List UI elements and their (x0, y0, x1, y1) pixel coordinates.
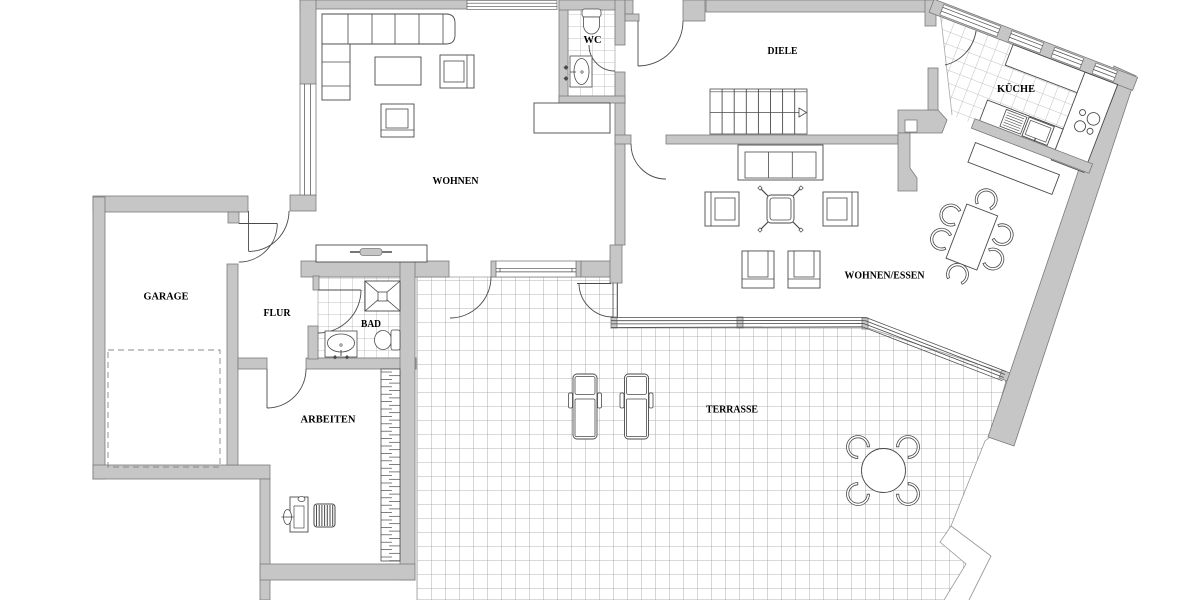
svg-text:WOHNEN: WOHNEN (433, 175, 479, 187)
svg-text:WC: WC (584, 34, 602, 46)
svg-text:DIELE: DIELE (768, 45, 798, 57)
svg-text:BAD: BAD (361, 318, 381, 330)
svg-text:WOHNEN/ESSEN: WOHNEN/ESSEN (845, 270, 925, 282)
svg-text:ARBEITEN: ARBEITEN (301, 414, 356, 426)
svg-text:FLUR: FLUR (264, 307, 292, 319)
svg-text:GARAGE: GARAGE (144, 291, 189, 303)
svg-text:TERRASSE: TERRASSE (706, 404, 758, 416)
svg-text:KÜCHE: KÜCHE (997, 82, 1035, 95)
